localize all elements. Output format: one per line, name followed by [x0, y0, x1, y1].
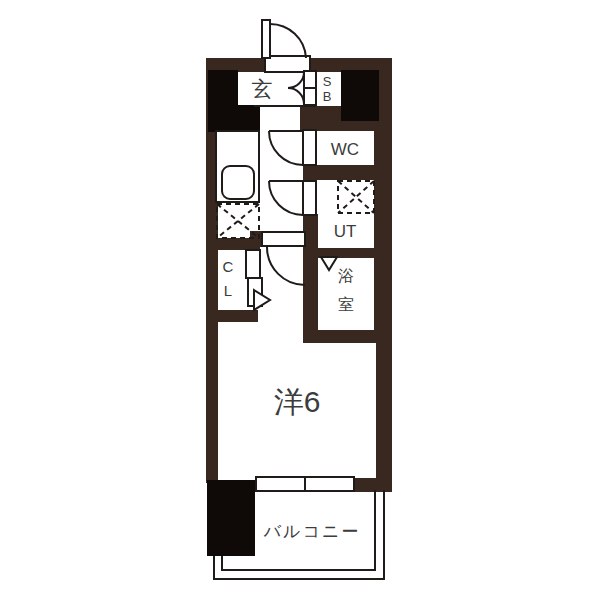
shoebox-label-bottom: B: [323, 89, 332, 104]
bath-label-top: 浴: [338, 267, 354, 284]
floor-plan-drawing: 玄 S B WC UT 浴 室 C L 洋6 バルコニー: [0, 0, 600, 600]
block-top-left: [208, 70, 238, 107]
closet-door-panel-top: [246, 250, 260, 278]
wc-door-arc-icon: [269, 131, 303, 165]
utility-label: UT: [334, 222, 357, 241]
shoebox-label-top: S: [323, 74, 332, 89]
kitchen-sink: [222, 166, 254, 199]
shoebox-door-panel-bottom: [304, 88, 316, 105]
entrance-label: 玄: [252, 77, 273, 100]
wall-below-closet: [210, 310, 258, 322]
block-below-entrance: [208, 105, 260, 132]
kitchen-appliance-cross-icon: [217, 204, 259, 238]
ut-appliance-cross-icon: [338, 181, 374, 213]
entrance-threshold: [265, 56, 310, 72]
western-room-label: 洋6: [274, 385, 321, 418]
toilet-label: WC: [331, 140, 359, 159]
wall-roomdoor-right: [305, 231, 318, 247]
shoebox-door-panel-top: [304, 71, 316, 88]
balcony-label: バルコニー: [263, 522, 361, 541]
ut-door-arc-icon: [269, 181, 303, 215]
shoebox-door-arc-bottom-icon: [288, 88, 304, 104]
wall-window-right: [353, 478, 392, 492]
entrance-door-leaf: [262, 20, 270, 58]
block-top-right: [341, 70, 379, 121]
wall-wc-ut-band: [303, 165, 374, 180]
wall-right-lower: [376, 343, 392, 492]
closet-label-top: C: [223, 258, 234, 275]
wall-bath-bottom: [303, 330, 392, 343]
room-door-arc-icon: [267, 247, 305, 285]
ut-door-leaf: [303, 181, 316, 215]
entrance-door-arc-icon: [270, 24, 306, 58]
floor-plan-canvas: 玄 S B WC UT 浴 室 C L 洋6 バルコニー: [0, 0, 600, 600]
bath-door-triangle-icon: [321, 257, 337, 270]
shoebox-door-arc-top-icon: [288, 72, 304, 88]
closet-label-bottom: L: [224, 282, 232, 299]
block-balcony-left: [207, 480, 255, 556]
wc-door-leaf: [303, 130, 316, 165]
room-door-leaf: [262, 232, 305, 246]
bath-label-bottom: 室: [338, 296, 354, 313]
